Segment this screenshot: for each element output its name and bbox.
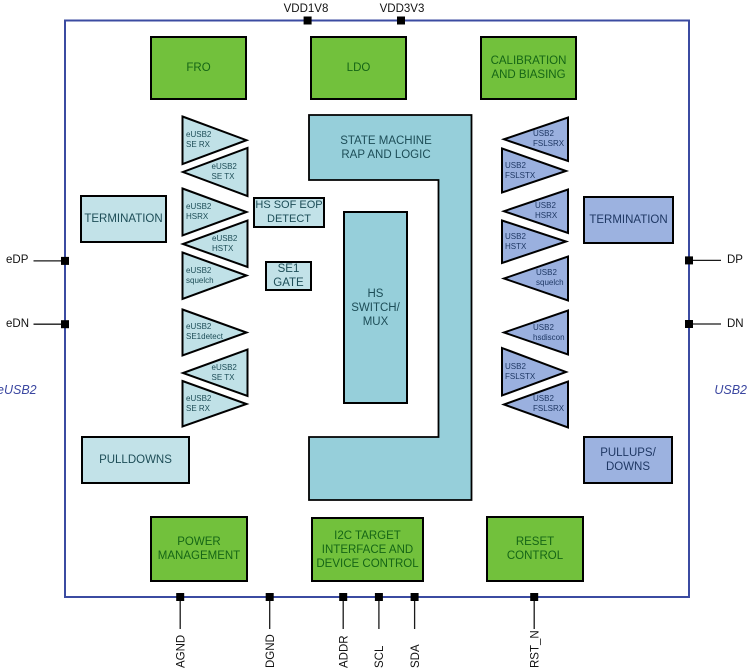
svg-text:AGND: AGND: [175, 635, 187, 668]
svg-text:RST_N: RST_N: [529, 630, 541, 668]
svg-text:SDA: SDA: [410, 644, 422, 668]
svg-text:DGND: DGND: [265, 634, 277, 668]
svg-text:SCL: SCL: [374, 645, 386, 668]
svg-text:ADDR: ADDR: [338, 635, 350, 668]
